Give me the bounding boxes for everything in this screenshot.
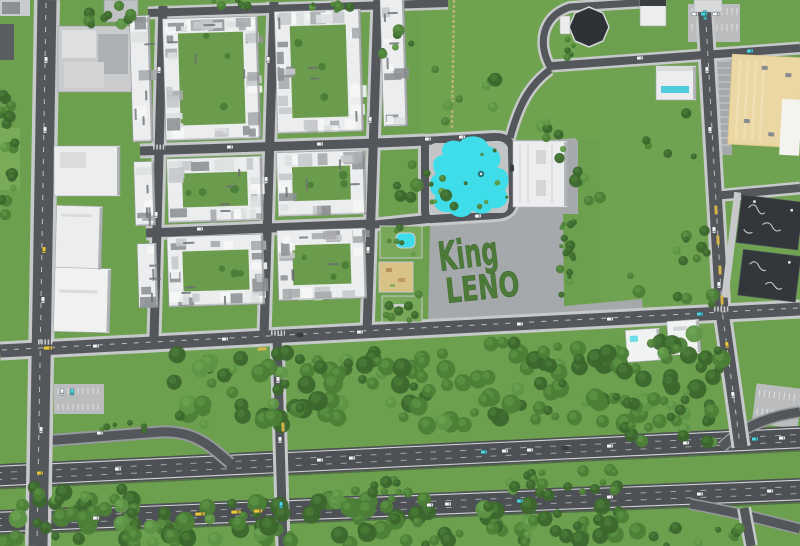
tree-highlight [736,524,741,529]
tree-highlight [565,55,569,59]
rooftop-unit [171,256,178,269]
tree-highlight [416,291,420,295]
tree-highlight [171,348,180,357]
tree-highlight [250,496,259,505]
tree-highlight [682,396,687,401]
tree-highlight [429,182,432,185]
tree-highlight [312,3,314,5]
vehicle[interactable] [195,512,205,516]
tree-highlight [412,399,421,408]
vehicle-body [39,427,43,434]
vehicle[interactable] [43,127,47,134]
tree-highlight [89,22,93,26]
residential-block[interactable] [276,150,366,217]
building-gap [308,67,318,69]
tree-highlight [654,416,661,423]
tree-highlight [568,275,570,277]
vehicle-body [195,512,205,516]
vehicle[interactable] [752,437,759,441]
tree-highlight [142,424,145,427]
vehicle[interactable] [747,49,754,53]
residential-block[interactable] [167,156,268,224]
rooftop-unit [230,293,242,303]
vehicle-body [459,135,466,139]
vehicle[interactable] [481,450,488,454]
rooftop-unit [283,236,290,244]
dark-building-sliver[interactable] [0,24,14,60]
tree-highlight [544,120,547,123]
tree-highlight [297,404,302,409]
tree-highlight [11,185,14,188]
tree-highlight [601,480,604,483]
tree-highlight [464,182,466,184]
vehicle[interactable] [701,12,708,16]
residential-block[interactable] [167,234,269,307]
tree-highlight [504,396,514,406]
vehicle[interactable] [231,510,241,514]
rooftop-unit [277,68,284,81]
tree-highlight [574,523,579,528]
tree-highlight [493,149,495,151]
vehicle[interactable] [60,389,64,396]
vehicle-body [60,389,64,396]
tree-highlight [706,405,713,412]
vehicle[interactable] [279,502,283,509]
rooftop-unit [251,241,266,251]
tree-highlight [394,480,398,484]
tree-highlight [561,530,568,537]
vehicle[interactable] [562,446,569,450]
vehicle-windshield [44,131,47,132]
building-gap [145,91,147,101]
vehicle-body [115,467,122,471]
vehicle[interactable] [222,337,229,341]
tree-highlight [545,407,550,412]
rooftop-unit [353,230,362,237]
tree-highlight [409,161,414,166]
vehicle[interactable] [366,247,370,254]
tree-highlight [74,534,80,540]
tree-highlight [574,168,579,173]
vehicle-windshield [701,493,703,496]
tree-highlight [361,525,370,534]
tree-highlight [560,380,564,384]
rooftop-unit [165,27,176,34]
rooftop-unit [384,73,401,80]
vehicle-windshield [611,318,613,321]
vehicle[interactable] [697,492,704,496]
residential-block[interactable] [277,228,372,302]
residential-block[interactable] [162,16,266,141]
vehicle[interactable] [692,12,699,16]
tree-highlight [396,191,402,197]
tree-highlight [382,489,386,493]
vehicle[interactable] [70,389,74,396]
vehicle-body [93,516,100,520]
vehicle[interactable] [517,322,524,326]
tree-highlight [442,191,448,197]
vehicle-windshield [718,286,721,288]
tree-highlight [281,380,286,385]
tree-highlight [400,413,405,418]
building-gap [220,210,230,212]
vehicle[interactable] [276,377,280,384]
rooftop-unit [246,158,253,170]
vehicle[interactable] [357,330,364,334]
tree-highlight [176,412,181,417]
blue-sign-shop[interactable] [656,66,696,100]
residential-block[interactable] [274,9,367,134]
vehicle[interactable] [725,342,729,349]
tree-highlight [483,82,488,87]
tree-highlight [684,389,688,393]
vehicle[interactable] [349,456,356,460]
vehicle[interactable] [297,333,304,337]
vehicle-body [197,227,204,231]
fountain-spray [480,173,482,175]
vehicle-windshield [521,500,523,503]
tree-highlight [580,489,583,492]
vehicle[interactable] [43,346,52,350]
vehicle[interactable] [459,135,466,139]
tree-highlight [571,220,574,223]
vehicle[interactable] [705,67,709,74]
vehicle[interactable] [197,227,204,231]
tree-highlight [606,465,612,471]
rooftop-unit [250,195,262,207]
vehicle[interactable] [683,441,690,445]
vehicle-body [637,56,644,60]
tree-highlight [42,523,48,529]
tree-highlight [598,416,605,423]
tree-highlight [201,501,209,509]
residential-block[interactable] [134,161,156,226]
rooftop-unit [192,294,200,302]
tree-highlight [668,413,673,418]
tree-highlight [430,200,433,203]
vehicle-windshield [41,472,43,475]
rooftop-unit [247,86,262,93]
vehicle[interactable] [510,165,514,172]
vehicle[interactable] [475,214,482,218]
tree-highlight [394,183,398,187]
vehicle-body [701,12,708,16]
vehicle[interactable] [266,57,270,64]
rooftop-unit [323,231,337,240]
tree-highlight [570,53,572,55]
building-gap [151,293,153,302]
building-gap [146,185,148,193]
tree-highlight [230,365,235,370]
vehicle[interactable] [607,495,614,499]
tree-highlight [680,257,685,262]
tree-highlight [8,102,13,107]
vehicle[interactable] [713,12,720,16]
vehicle[interactable] [708,127,712,134]
vehicle-windshield [231,146,233,149]
vehicle[interactable] [731,392,735,399]
vehicle[interactable] [317,458,324,462]
vehicle-windshield [756,438,758,441]
rooftop-unit [170,208,187,217]
parking-lot-west[interactable] [54,384,104,414]
vehicle[interactable] [445,502,452,506]
tree-highlight [30,482,37,489]
vehicle[interactable] [368,117,372,124]
tree-highlight [700,352,708,360]
tree-highlight [528,353,537,362]
building-gap [219,203,229,205]
vehicle[interactable] [93,344,100,348]
vehicle-windshield [641,57,643,60]
rooftop-unit [141,287,151,295]
vehicle[interactable] [278,437,282,444]
vehicle[interactable] [97,431,104,435]
hedge-text-leno: LENO [444,264,522,312]
vehicle-body [731,392,735,399]
vehicle[interactable] [697,312,704,316]
bus-stop[interactable] [714,205,717,214]
tree-highlight [391,515,397,521]
rooftop-unit [344,119,355,131]
vehicle-windshield [611,445,613,448]
building-gap [185,286,195,288]
game-viewport[interactable]: King LENO [0,0,800,546]
rooftop-unit [387,116,393,125]
tree-highlight [511,482,516,487]
vehicle-body [705,67,709,74]
tree-highlight [444,101,450,107]
bus-stop[interactable] [281,422,284,431]
vehicle[interactable] [115,467,122,471]
rooftop-unit [279,12,292,25]
tree-highlight [673,345,678,350]
vehicle-windshield [101,432,103,435]
tree-highlight [634,286,640,292]
tree-highlight [707,371,715,379]
tree-highlight [388,314,392,318]
vehicle[interactable] [157,67,161,74]
tree-highlight [128,509,133,514]
vehicle[interactable] [93,516,100,520]
tree-highlight [422,541,426,545]
vehicle[interactable] [44,57,48,64]
tree-highlight [438,416,446,424]
tree-highlight [715,347,719,351]
tree-highlight [424,170,428,174]
tree-highlight [412,312,416,316]
tree-highlight [374,358,378,362]
tree-highlight [2,210,8,216]
rooftop-unit [166,87,173,96]
tree-highlight [506,196,508,198]
tree-highlight [53,533,57,537]
tree-highlight [659,348,665,354]
vehicle[interactable] [253,509,262,513]
tree-highlight [716,527,719,530]
vehicle-body [517,499,524,503]
rooftop-unit [280,275,287,280]
vehicle-body [93,344,100,348]
vehicle-windshield [155,216,158,218]
vehicle-windshield [751,50,753,53]
tree-highlight [489,409,496,416]
vehicle[interactable] [607,444,614,448]
tree-highlight [431,537,436,542]
building-gap [152,269,154,281]
tree-highlight [554,510,558,514]
vehicle-body [517,322,524,326]
tree-highlight [387,398,393,404]
bus-stop[interactable] [718,265,721,274]
vehicle[interactable] [317,142,324,146]
pool-house[interactable] [513,141,567,207]
tree-highlight [708,290,715,297]
mall[interactable] [727,54,800,156]
tree-highlight [628,273,631,276]
tree-highlight [551,526,557,532]
tree-highlight [585,197,590,202]
tree-highlight [611,486,616,491]
tree-highlight [182,532,190,540]
vehicle[interactable] [517,499,524,503]
tree-highlight [552,413,556,417]
tree-highlight [485,200,487,202]
vehicle-body [607,495,614,499]
vehicle-body [276,377,280,384]
tree-highlight [208,380,213,385]
tree-highlight [343,502,351,510]
tree-highlight [206,515,211,520]
tree-highlight [575,355,581,361]
tree-highlight [485,503,490,508]
tree-highlight [703,437,709,443]
vehicle[interactable] [607,317,614,321]
vehicle[interactable] [717,282,721,289]
rooftop-unit [139,70,157,81]
vehicle-windshield [506,450,508,453]
tree-highlight [544,490,550,496]
small-building-north-2[interactable] [694,0,722,12]
tree-highlight [442,118,446,122]
vehicle[interactable] [154,212,158,219]
building-gap [195,54,197,63]
vehicle[interactable] [427,503,434,507]
vehicle-windshield [237,511,239,514]
vehicle-body [683,441,690,445]
white-office-west[interactable] [54,146,120,196]
rooftop-unit [352,28,359,39]
vehicle-windshield [353,457,355,460]
rooftop-unit [191,162,209,172]
tree-highlight [196,397,205,406]
tree-highlight [471,409,475,413]
tree-highlight [421,418,430,427]
vehicle-windshield [531,449,533,452]
tree-highlight [407,318,410,321]
vehicle-windshield [783,437,785,440]
tree-highlight [457,96,461,100]
tree-highlight [241,513,245,517]
tree-highlight [495,181,498,184]
vehicle[interactable] [264,177,268,184]
vehicle-windshield [265,181,268,183]
vehicle-windshield [687,442,689,445]
rooftop-unit [167,118,181,131]
tree-highlight [11,511,20,520]
vehicle[interactable] [637,56,644,60]
vehicle-windshield [369,121,372,123]
tree-highlight [316,362,323,369]
rooftop-unit [143,200,153,213]
tree-highlight [233,518,240,525]
tree-highlight [200,421,205,426]
tree-highlight [100,427,103,430]
tree-highlight [411,383,415,387]
tree-highlight [443,534,451,542]
tree-highlight [536,489,541,494]
tree-highlight [85,16,91,22]
tree-highlight [571,175,578,182]
vehicle-windshield [301,334,303,337]
sand-playground[interactable] [379,262,413,292]
tree-highlight [101,15,105,19]
vehicle[interactable] [502,449,509,453]
rooftop-unit [354,247,364,256]
tree-highlight [146,521,153,528]
vehicle[interactable] [527,448,534,452]
vehicle[interactable] [712,227,716,234]
tree-highlight [360,502,369,511]
tree-highlight [302,365,310,373]
rooftop-unit [352,83,359,95]
tree-highlight [5,112,11,118]
tree-highlight [296,355,301,360]
tree-highlight [701,227,706,232]
tree-highlight [569,412,577,420]
tree-highlight [410,508,418,516]
bus-stop[interactable] [720,295,723,304]
tree-highlight [118,485,124,491]
vehicle[interactable] [37,471,44,475]
tree-highlight [67,508,74,515]
vehicle[interactable] [227,145,234,149]
vehicle-windshield [61,393,64,394]
building-gap [203,24,215,26]
vehicle-body [278,437,282,444]
vehicle[interactable] [779,436,786,440]
bus-stop[interactable] [716,235,719,244]
vehicle[interactable] [42,247,46,254]
tree-highlight [85,9,91,15]
vehicle-body [425,137,432,141]
vehicle[interactable] [767,489,774,493]
bus-stop[interactable] [257,347,266,350]
vehicle-body [154,212,158,219]
vehicle-body [297,333,304,337]
building-gap [339,159,341,169]
vehicle[interactable] [41,297,45,304]
vehicle[interactable] [425,137,432,141]
tree-highlight [488,523,494,529]
tree-highlight [709,302,713,306]
tree-highlight [490,103,495,108]
vehicle-body [747,49,754,53]
rooftop-unit [279,107,292,114]
tree-highlight [688,327,696,335]
vehicle[interactable] [39,427,43,434]
vehicle-body [222,337,229,341]
